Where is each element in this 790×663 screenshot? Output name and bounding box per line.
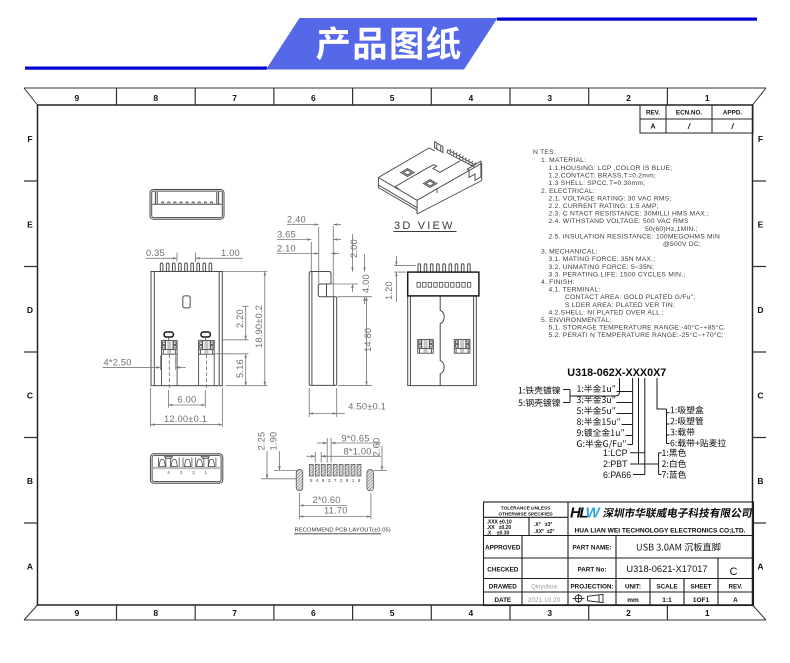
svg-text:PART No:: PART No: xyxy=(578,567,607,574)
svg-text:CONTACT AREA: GOLD PLATED G/Fu: CONTACT AREA: GOLD PLATED G/Fu"; xyxy=(565,294,695,301)
svg-text:4.50±0.1: 4.50±0.1 xyxy=(348,402,386,412)
svg-text:B: B xyxy=(27,476,33,486)
svg-text:3.3. PERATING LIFE: 1500 CYC: 3.3. PERATING LIFE: 1500 CYCLES MIN.; xyxy=(549,271,686,278)
svg-text:/: / xyxy=(687,122,691,131)
svg-text:2:PBT: 2:PBT xyxy=(603,459,628,469)
svg-text:4: 4 xyxy=(316,478,319,483)
svg-text:2.40: 2.40 xyxy=(287,214,306,224)
svg-text:12.00±0.1: 12.00±0.1 xyxy=(164,414,207,424)
svg-text:W: W xyxy=(586,505,602,522)
svg-text:C: C xyxy=(730,566,738,578)
svg-text:3: 3 xyxy=(547,93,552,103)
svg-text:3D VIEW: 3D VIEW xyxy=(394,220,455,232)
svg-text:B: B xyxy=(757,476,763,486)
svg-text:4*2.50: 4*2.50 xyxy=(104,357,132,367)
svg-text:2.10: 2.10 xyxy=(277,243,296,253)
svg-text:9: 9 xyxy=(75,93,80,103)
svg-text:E: E xyxy=(27,220,33,230)
svg-text:3. MECHANICAL:: 3. MECHANICAL: xyxy=(541,249,598,256)
svg-text:PROJECTION:: PROJECTION: xyxy=(570,584,613,591)
svg-text:1:LCP: 1:LCP xyxy=(603,448,628,458)
svg-text:7: 7 xyxy=(334,478,337,483)
svg-text:2.1. VOLTAGE RATING: 30 VAC R: 2.1. VOLTAGE RATING: 30 VAC RMS; xyxy=(549,195,672,202)
svg-text:3: 3 xyxy=(547,608,552,618)
svg-text:SHEET: SHEET xyxy=(691,584,712,591)
svg-text:UNIT:: UNIT: xyxy=(625,584,641,591)
svg-text:8: 8 xyxy=(153,608,158,618)
svg-text:C: C xyxy=(757,391,763,401)
svg-text:2: 2 xyxy=(340,478,343,483)
svg-text:5.2. PERATI N TEMPERATURE RA: 5.2. PERATI N TEMPERATURE RANGE:-25°C~+7… xyxy=(549,331,724,339)
svg-text:3: 3 xyxy=(328,478,331,483)
svg-text:7: 7 xyxy=(232,608,237,618)
svg-text:1.20: 1.20 xyxy=(384,281,394,300)
svg-text:6: 6 xyxy=(311,93,316,103)
svg-text:HUA LIAN WEI TECHNOLOGY ELECTR: HUA LIAN WEI TECHNOLOGY ELECTRONICS CO;L… xyxy=(575,528,746,535)
svg-text:1: 1 xyxy=(705,608,710,618)
svg-text:5. ENVIRONMENTAL:: 5. ENVIRONMENTAL: xyxy=(541,317,612,324)
svg-text:18.90±0.2: 18.90±0.2 xyxy=(254,305,264,348)
svg-text:OTHERWISE SPECIFIED: OTHERWISE SPECIFIED xyxy=(498,512,553,517)
svg-text:F: F xyxy=(27,134,32,144)
svg-text:5.16: 5.16 xyxy=(235,359,245,378)
svg-text:E: E xyxy=(758,220,764,230)
svg-text:5.1. STORAGE TEMPERATURE RANG: 5.1. STORAGE TEMPERATURE RANGE:-40°C~+85… xyxy=(549,324,726,332)
svg-text:2: 2 xyxy=(192,470,195,475)
svg-text:8: 8 xyxy=(346,478,349,483)
svg-text:1.00: 1.00 xyxy=(221,248,240,258)
svg-text:2.2. CURRENT RATING: 1.5 AMP;: 2.2. CURRENT RATING: 1.5 AMP; xyxy=(549,203,659,210)
svg-text:F: F xyxy=(758,134,763,144)
svg-text:2.5. INSULATION RESISTANCE: 1: 2.5. INSULATION RESISTANCE: 100MEGOHMS M… xyxy=(549,233,721,240)
svg-text:@500V DC;: @500V DC; xyxy=(663,241,701,248)
svg-text:PART NAME:: PART NAME: xyxy=(572,545,611,552)
svg-text:D: D xyxy=(27,305,33,315)
svg-text:8*1.00: 8*1.00 xyxy=(344,447,372,457)
svg-text:SCALE: SCALE xyxy=(656,584,677,591)
svg-text:5: 5 xyxy=(310,478,313,483)
svg-text:50(60)Hz,1MIN.;: 50(60)Hz,1MIN.; xyxy=(645,226,698,233)
svg-text:S LDER AREA: PLATED VER TIN;: S LDER AREA: PLATED VER TIN; xyxy=(565,302,675,309)
svg-text:DATE: DATE xyxy=(494,597,511,604)
svg-text:6:PA66: 6:PA66 xyxy=(603,470,631,480)
svg-text:1:1: 1:1 xyxy=(662,597,672,604)
svg-text:1OF1: 1OF1 xyxy=(693,597,710,604)
svg-text:4.1. TERMINAL:: 4.1. TERMINAL: xyxy=(549,287,601,294)
svg-text:2.4. WITHSTAND VOLTAGE: 500 V: 2.4. WITHSTAND VOLTAGE: 500 VAC RMS xyxy=(549,218,689,225)
svg-text:2: 2 xyxy=(626,93,631,103)
svg-text:2: 2 xyxy=(626,608,631,618)
svg-text:ECN.NO.: ECN.NO. xyxy=(676,110,702,117)
svg-text:4.00: 4.00 xyxy=(361,274,371,293)
svg-text:5: 5 xyxy=(390,93,395,103)
svg-text:1.1.HOUSING: LCP ,COLOR IS BLU: 1.1.HOUSING: LCP ,COLOR IS BLUE; xyxy=(549,165,673,172)
svg-text:0.35: 0.35 xyxy=(146,248,165,258)
svg-text:2.25: 2.25 xyxy=(256,432,266,451)
svg-text:2.20: 2.20 xyxy=(235,309,245,328)
svg-text:DRAWED: DRAWED xyxy=(489,584,517,591)
svg-text:.X ±0.30: .X ±0.30 xyxy=(487,531,510,537)
svg-text:4. FINISH:: 4. FINISH: xyxy=(541,279,575,286)
svg-text:8: 8 xyxy=(153,93,158,103)
svg-text:14.80: 14.80 xyxy=(363,328,373,352)
svg-text:A: A xyxy=(757,562,763,572)
svg-text:6.00: 6.00 xyxy=(178,395,197,405)
svg-text:1: 1 xyxy=(705,93,710,103)
svg-text:2*0.60: 2*0.60 xyxy=(313,495,341,505)
svg-text:mm: mm xyxy=(627,597,639,604)
svg-text:A: A xyxy=(27,562,33,572)
svg-text:/: / xyxy=(730,122,734,131)
svg-text:7: 7 xyxy=(232,93,237,103)
svg-text:.X° ±3°: .X° ±3° xyxy=(534,522,552,528)
svg-text:1. MATERIAL:: 1. MATERIAL: xyxy=(541,157,586,164)
svg-text:2021.10.20: 2021.10.20 xyxy=(528,597,561,604)
svg-text:2. ELECTRICAL:: 2. ELECTRICAL: xyxy=(541,188,595,195)
svg-text:2.60: 2.60 xyxy=(371,438,381,457)
svg-text:C: C xyxy=(27,391,33,401)
svg-text:2.00: 2.00 xyxy=(349,239,359,258)
svg-text:D: D xyxy=(757,305,763,315)
svg-text:REV.: REV. xyxy=(646,110,660,117)
svg-text:N TES:: N TES: xyxy=(533,149,556,156)
svg-text:2.3. C NTACT RESISTANCE: 30MI: 2.3. C NTACT RESISTANCE: 30MILLI HMS MAX… xyxy=(549,211,710,218)
svg-text:1.90: 1.90 xyxy=(268,432,278,451)
svg-text:Qinyuhua: Qinyuhua xyxy=(531,585,557,591)
svg-text:TOLERANCE UNLESS: TOLERANCE UNLESS xyxy=(501,506,550,511)
svg-text:3.1. MATING FORCE: 35N MAX.;: 3.1. MATING FORCE: 35N MAX.; xyxy=(549,256,656,263)
svg-text:4: 4 xyxy=(469,608,474,618)
svg-text:U318-0621-X17017: U318-0621-X17017 xyxy=(626,564,707,574)
svg-text:4: 4 xyxy=(167,470,170,475)
svg-text:1.2.CONTACT: BRASS,T=0.2mm;: 1.2.CONTACT: BRASS,T=0.2mm; xyxy=(549,173,657,180)
svg-text:APPROVED: APPROVED xyxy=(485,545,521,552)
svg-text:U318-062X-XXX0X7: U318-062X-XXX0X7 xyxy=(567,367,666,379)
svg-text:9: 9 xyxy=(358,478,361,483)
svg-text:6: 6 xyxy=(322,478,325,483)
svg-text:9*0.65: 9*0.65 xyxy=(342,433,370,443)
svg-text:1: 1 xyxy=(352,478,355,483)
svg-text:1: 1 xyxy=(205,470,208,475)
svg-text:REV.: REV. xyxy=(728,584,742,591)
svg-text:RECOMMEND PCB LAYOUT(±0.05): RECOMMEND PCB LAYOUT(±0.05) xyxy=(295,528,391,534)
svg-text:APPD.: APPD. xyxy=(723,110,742,117)
svg-text:A: A xyxy=(733,597,738,604)
svg-text:3.65: 3.65 xyxy=(277,229,296,239)
svg-text:.XX° ±2°: .XX° ±2° xyxy=(534,529,554,535)
svg-text:5: 5 xyxy=(390,608,395,618)
svg-text:CHECKED: CHECKED xyxy=(487,567,519,574)
svg-text:3.2. UNMATING FORCE: 5~35N;: 3.2. UNMATING FORCE: 5~35N; xyxy=(549,264,655,271)
svg-text:9: 9 xyxy=(75,608,80,618)
svg-text:6: 6 xyxy=(311,608,316,618)
svg-text:A: A xyxy=(650,124,655,131)
svg-text:11.70: 11.70 xyxy=(324,506,348,516)
svg-text:3: 3 xyxy=(180,470,183,475)
svg-text:4.2.SHELL: NI PLATED OVER ALL: 4.2.SHELL: NI PLATED OVER ALL ; xyxy=(549,309,665,316)
svg-text:1.3 SHELL: SPCC,T=0.30mm;: 1.3 SHELL: SPCC,T=0.30mm; xyxy=(549,180,646,187)
svg-text:4: 4 xyxy=(469,93,474,103)
